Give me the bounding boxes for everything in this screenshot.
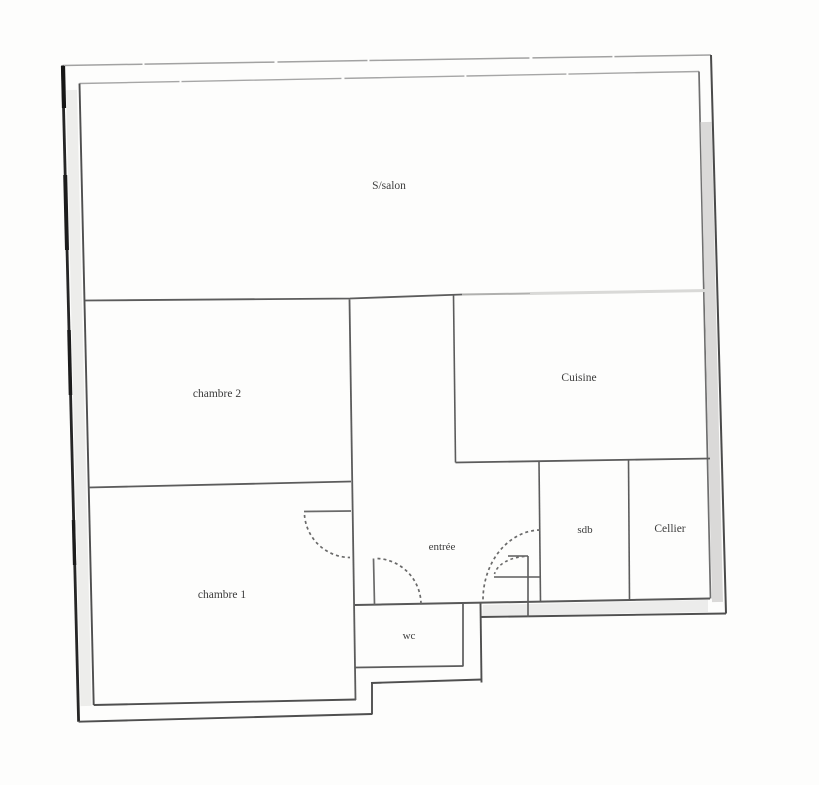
svg-text:S/salon: S/salon xyxy=(372,180,406,192)
svg-text:entrée: entrée xyxy=(429,541,456,553)
svg-text:Cellier: Cellier xyxy=(654,523,685,535)
svg-text:chambre 1: chambre 1 xyxy=(198,589,246,601)
svg-text:Cuisine: Cuisine xyxy=(561,372,596,384)
svg-text:sdb: sdb xyxy=(577,524,593,536)
svg-text:chambre 2: chambre 2 xyxy=(193,388,241,400)
svg-text:wc: wc xyxy=(403,630,416,642)
